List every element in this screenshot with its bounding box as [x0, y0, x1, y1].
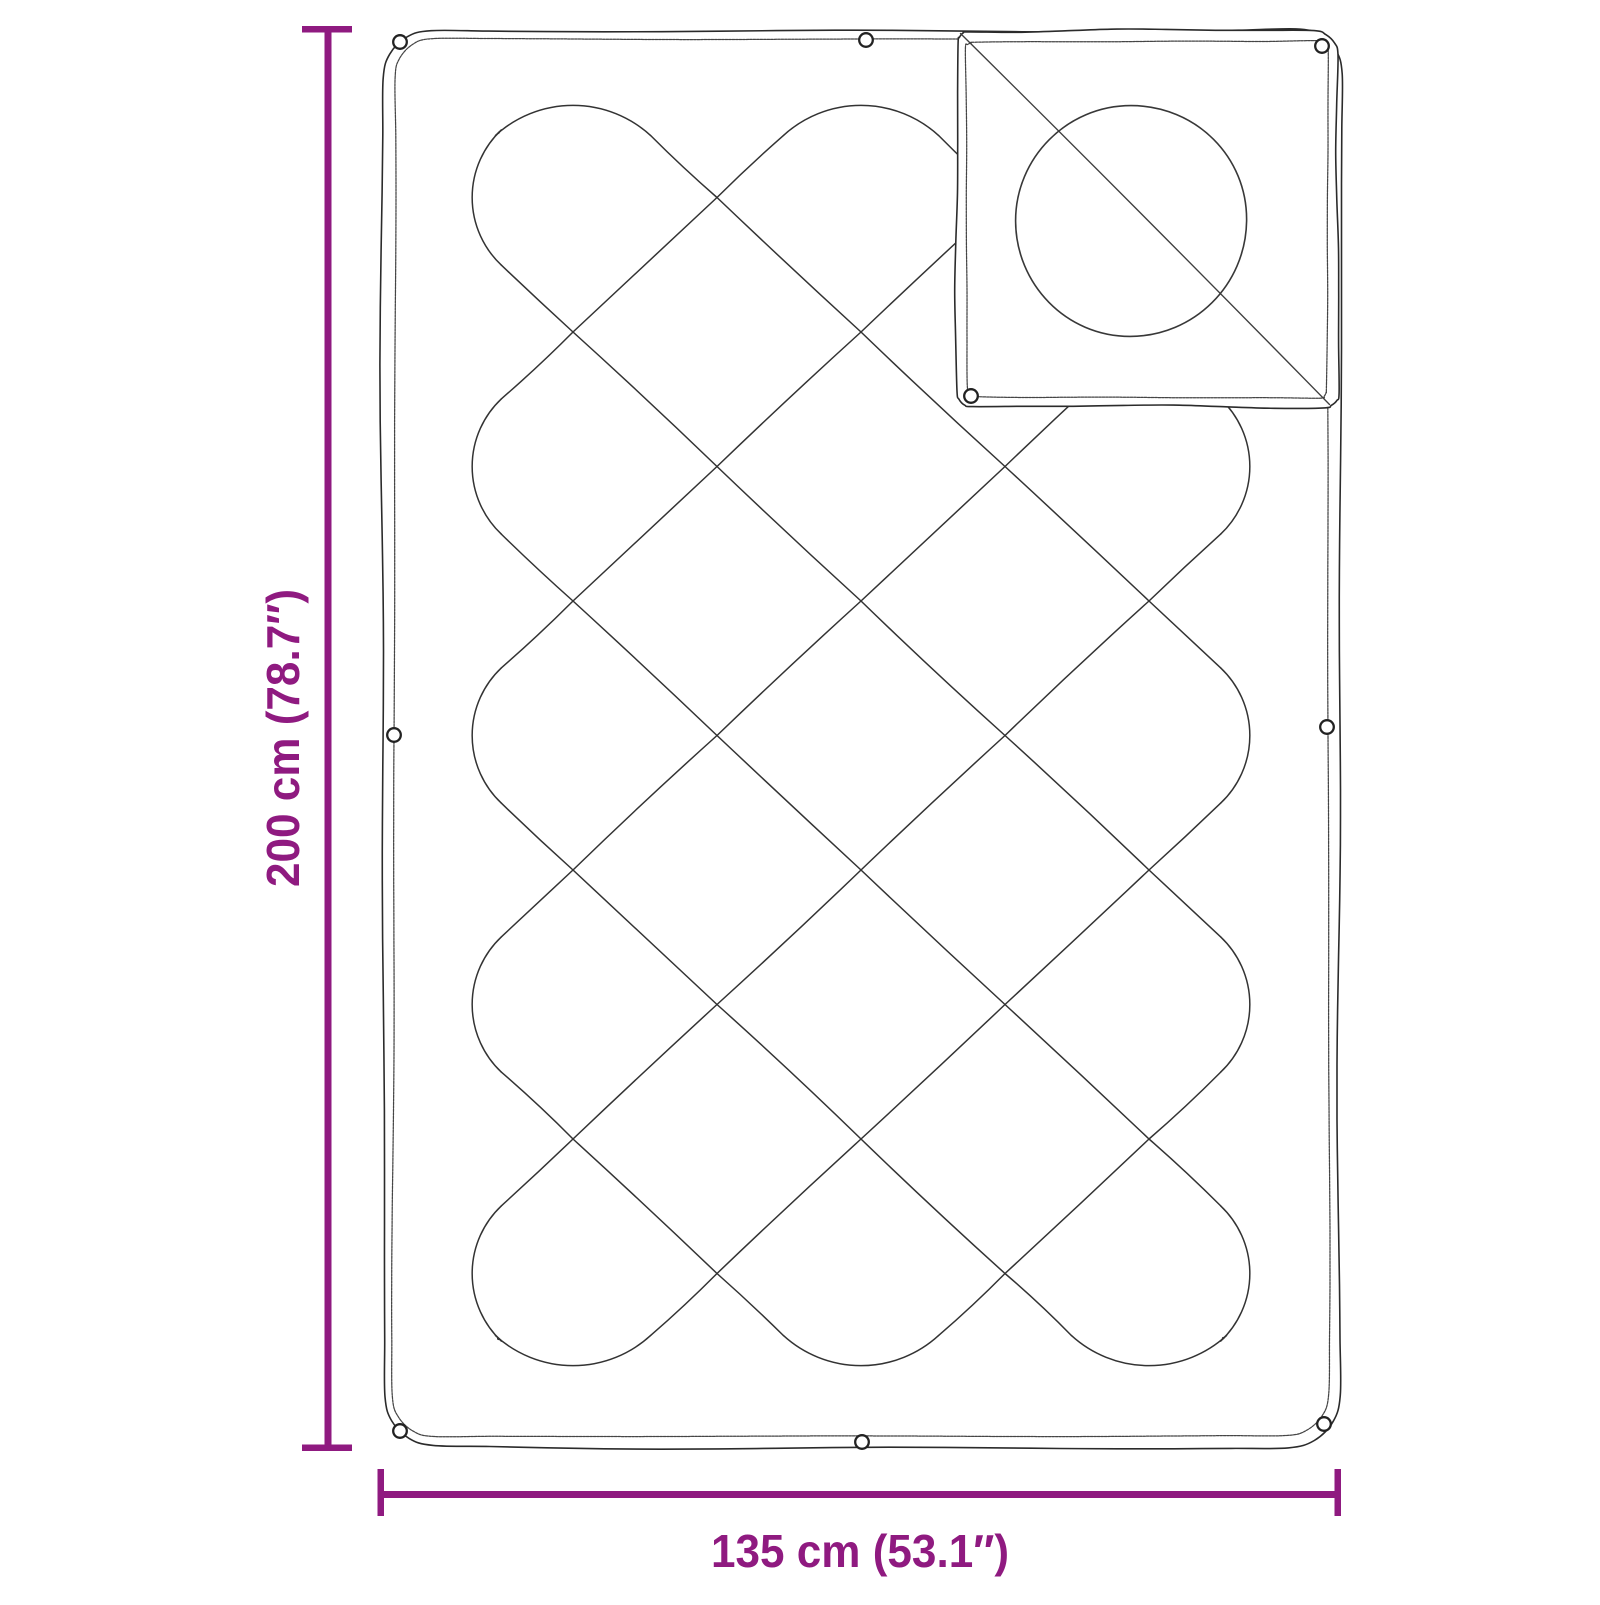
- svg-text:135 cm (53.1″): 135 cm (53.1″): [711, 1525, 1009, 1577]
- svg-text:200 cm (78.7″): 200 cm (78.7″): [257, 589, 309, 887]
